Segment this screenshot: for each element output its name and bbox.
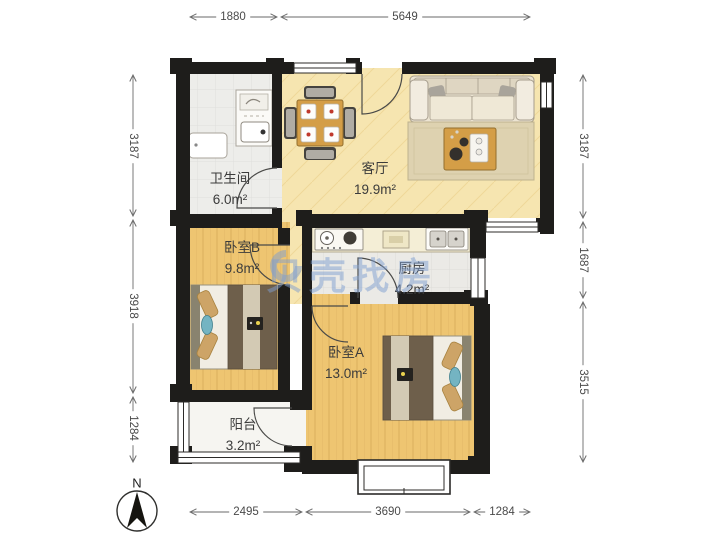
room-area: 3.2m² <box>226 435 261 456</box>
north-label: N <box>132 476 141 491</box>
dim-right-3: 3515 <box>577 365 589 399</box>
dim-bottom-3: 1284 <box>485 506 519 518</box>
room-area: 6.0m² <box>210 189 251 210</box>
room-area: 9.8m² <box>224 258 260 279</box>
balcony-left-window <box>178 402 189 452</box>
room-label-balcony: 阳台 3.2m² <box>226 414 261 456</box>
sofa <box>410 76 534 122</box>
dim-right-1: 3187 <box>577 129 589 163</box>
rug-and-coffee-table <box>408 122 534 180</box>
dim-bottom-1: 2495 <box>229 506 263 518</box>
living-room-south-window <box>486 222 538 232</box>
dim-left-1: 3187 <box>127 129 139 163</box>
dim-left-2: 3918 <box>127 289 139 323</box>
room-name: 厨房 <box>395 258 430 279</box>
room-name: 卫生间 <box>210 168 251 189</box>
room-label-bathroom: 卫生间 6.0m² <box>210 168 251 210</box>
dim-right-2: 1687 <box>577 243 589 277</box>
dim-top-1: 1880 <box>216 11 250 23</box>
room-name: 卧室B <box>224 237 260 258</box>
kitchen-window <box>471 258 485 298</box>
room-label-kitchen: 厨房 4.2m² <box>395 258 430 300</box>
compass <box>117 491 157 531</box>
room-label-bedroom-a: 卧室A 13.0m² <box>325 342 367 384</box>
bed-bedroom-a <box>383 336 471 420</box>
room-label-bedroom-b: 卧室B 9.8m² <box>224 237 260 279</box>
bed-bedroom-b <box>191 285 277 369</box>
room-area: 19.9m² <box>354 179 396 200</box>
kitchen-counter <box>312 226 470 252</box>
room-name: 阳台 <box>226 414 261 435</box>
dim-left-3: 1284 <box>127 411 139 445</box>
dim-top-2: 5649 <box>388 11 422 23</box>
room-area: 13.0m² <box>325 363 367 384</box>
floorplan-canvas: 卫生间 6.0m² 客厅 19.9m² 卧室B 9.8m² 厨房 4.2m² 卧… <box>0 0 720 540</box>
room-name: 卧室A <box>325 342 367 363</box>
bedroom-a-bay-window <box>358 460 450 494</box>
living-room-right-window <box>541 82 552 108</box>
living-room-top-window <box>294 63 356 73</box>
dim-bottom-2: 3690 <box>371 506 405 518</box>
room-area: 4.2m² <box>395 279 430 300</box>
room-label-living: 客厅 19.9m² <box>354 158 396 200</box>
kettle-icon <box>450 148 463 161</box>
floorplan-drawing <box>0 0 720 540</box>
room-name: 客厅 <box>354 158 396 179</box>
